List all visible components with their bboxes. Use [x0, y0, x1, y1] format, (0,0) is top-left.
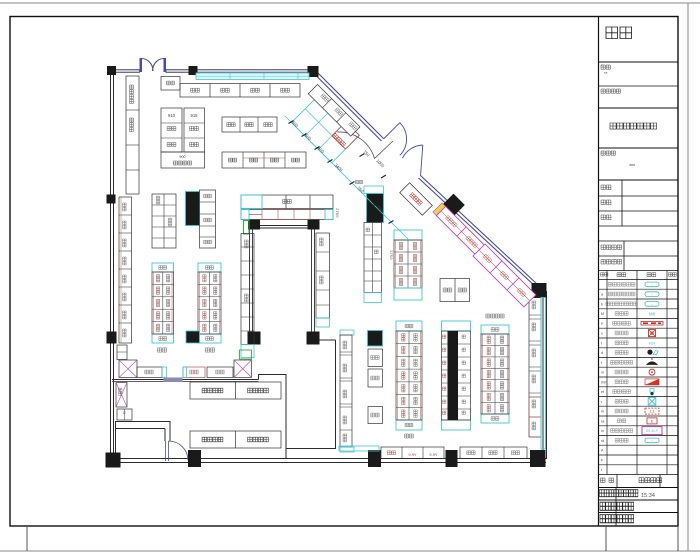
svg-text:DS 40-P: DS 40-P — [646, 429, 658, 433]
svg-text:~: ~ — [651, 283, 653, 287]
svg-text:f: f — [601, 361, 602, 365]
svg-text::: : — [611, 186, 612, 191]
svg-text:900: 900 — [179, 155, 185, 159]
svg-text::: : — [611, 216, 612, 221]
svg-text:m: m — [601, 371, 604, 375]
svg-text:mm: mm — [601, 381, 607, 385]
svg-text:rd: rd — [601, 439, 604, 443]
svg-text:2750: 2750 — [334, 208, 338, 218]
svg-text:915: 915 — [191, 113, 199, 118]
svg-text:M: M — [601, 312, 604, 316]
svg-text:1:1: 1:1 — [650, 410, 655, 414]
svg-text:~: ~ — [651, 439, 653, 443]
svg-text:~: ~ — [651, 292, 653, 296]
svg-text:9.9Y: 9.9Y — [408, 452, 417, 457]
svg-text:15:34: 15:34 — [641, 493, 655, 499]
svg-text:**: ** — [604, 71, 608, 76]
svg-text:rn: rn — [601, 410, 604, 414]
svg-text::: : — [601, 149, 602, 154]
svg-text:rc: rc — [601, 429, 604, 433]
svg-text:***: *** — [629, 164, 635, 170]
svg-text:~: ~ — [651, 302, 653, 306]
svg-text:M8: M8 — [649, 311, 656, 316]
svg-text:x: x — [601, 332, 603, 336]
svg-text:2750: 2750 — [388, 250, 392, 260]
svg-text:ef: ef — [601, 390, 604, 394]
svg-text:a: a — [601, 293, 603, 297]
svg-text:d: d — [601, 351, 603, 355]
svg-text:b: b — [601, 303, 603, 307]
svg-text:910: 910 — [168, 113, 176, 118]
svg-text:12: 12 — [122, 411, 126, 415]
svg-text::: : — [601, 62, 602, 67]
svg-text::: : — [611, 201, 612, 206]
svg-text:#24: #24 — [649, 341, 656, 346]
svg-text:ra: ra — [601, 420, 604, 424]
svg-text:9.9Y: 9.9Y — [429, 452, 438, 457]
svg-text:t: t — [601, 342, 602, 346]
